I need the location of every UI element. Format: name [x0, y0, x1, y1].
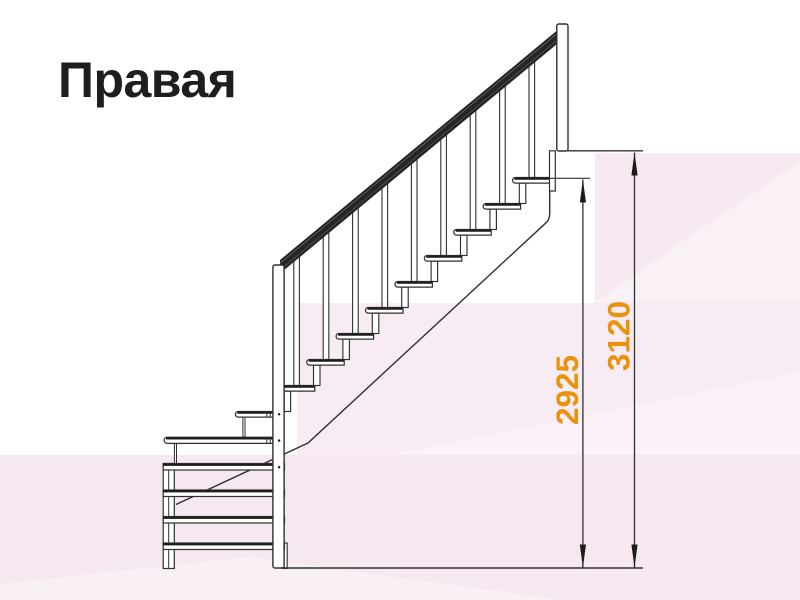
svg-text:3120: 3120 — [601, 301, 637, 371]
svg-text:Правая: Правая — [58, 52, 236, 108]
svg-text:2925: 2925 — [549, 355, 585, 425]
